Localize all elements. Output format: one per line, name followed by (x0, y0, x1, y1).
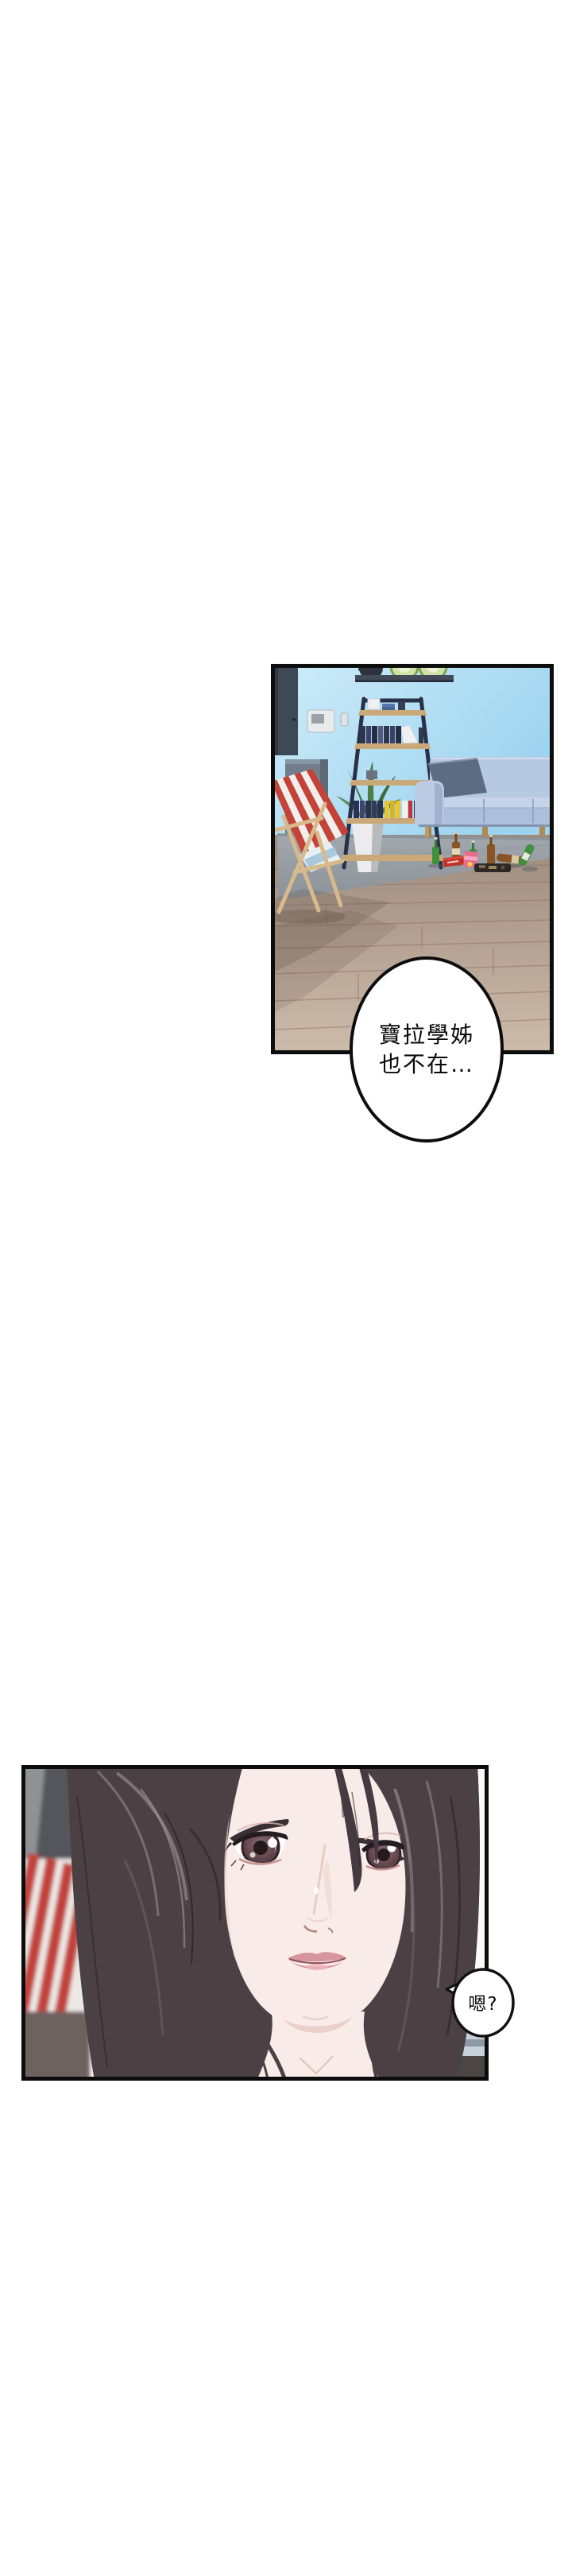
bubble-line: 寶拉學姊 (379, 1020, 474, 1049)
panel-woman-closeup (21, 1765, 489, 2081)
food-tray (474, 863, 511, 872)
sofa (415, 757, 554, 837)
door (272, 664, 298, 755)
shelf-box (366, 770, 377, 779)
bubble-line: 也不在… (379, 1049, 474, 1079)
speech-bubble-response: 嗯? (442, 1965, 517, 2041)
speech-bubble-narration: 寶拉學姊 也不在… (350, 956, 504, 1143)
face-skin (225, 1765, 406, 2027)
webtoon-page: 寶拉學姊 也不在… (0, 0, 572, 2576)
bubble-text: 嗯? (468, 1994, 497, 2015)
